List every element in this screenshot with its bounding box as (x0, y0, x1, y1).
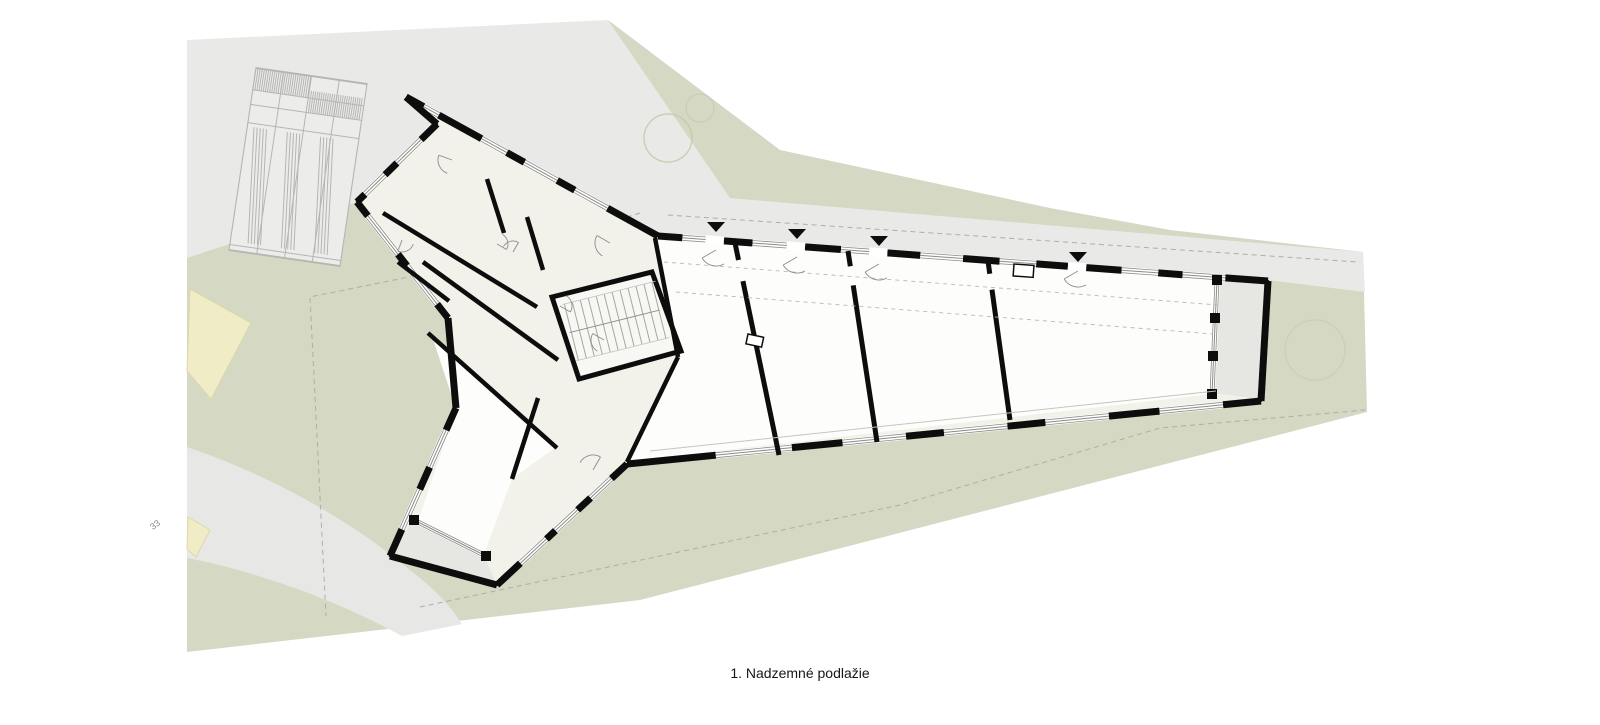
site-plan-drawing (0, 0, 1600, 725)
terrace-east (1214, 281, 1266, 399)
plan-caption: 1. Nadzemné podlažie (0, 665, 1600, 681)
floor-plan-page: 33 1. Nadzemné podlažie (0, 0, 1600, 725)
